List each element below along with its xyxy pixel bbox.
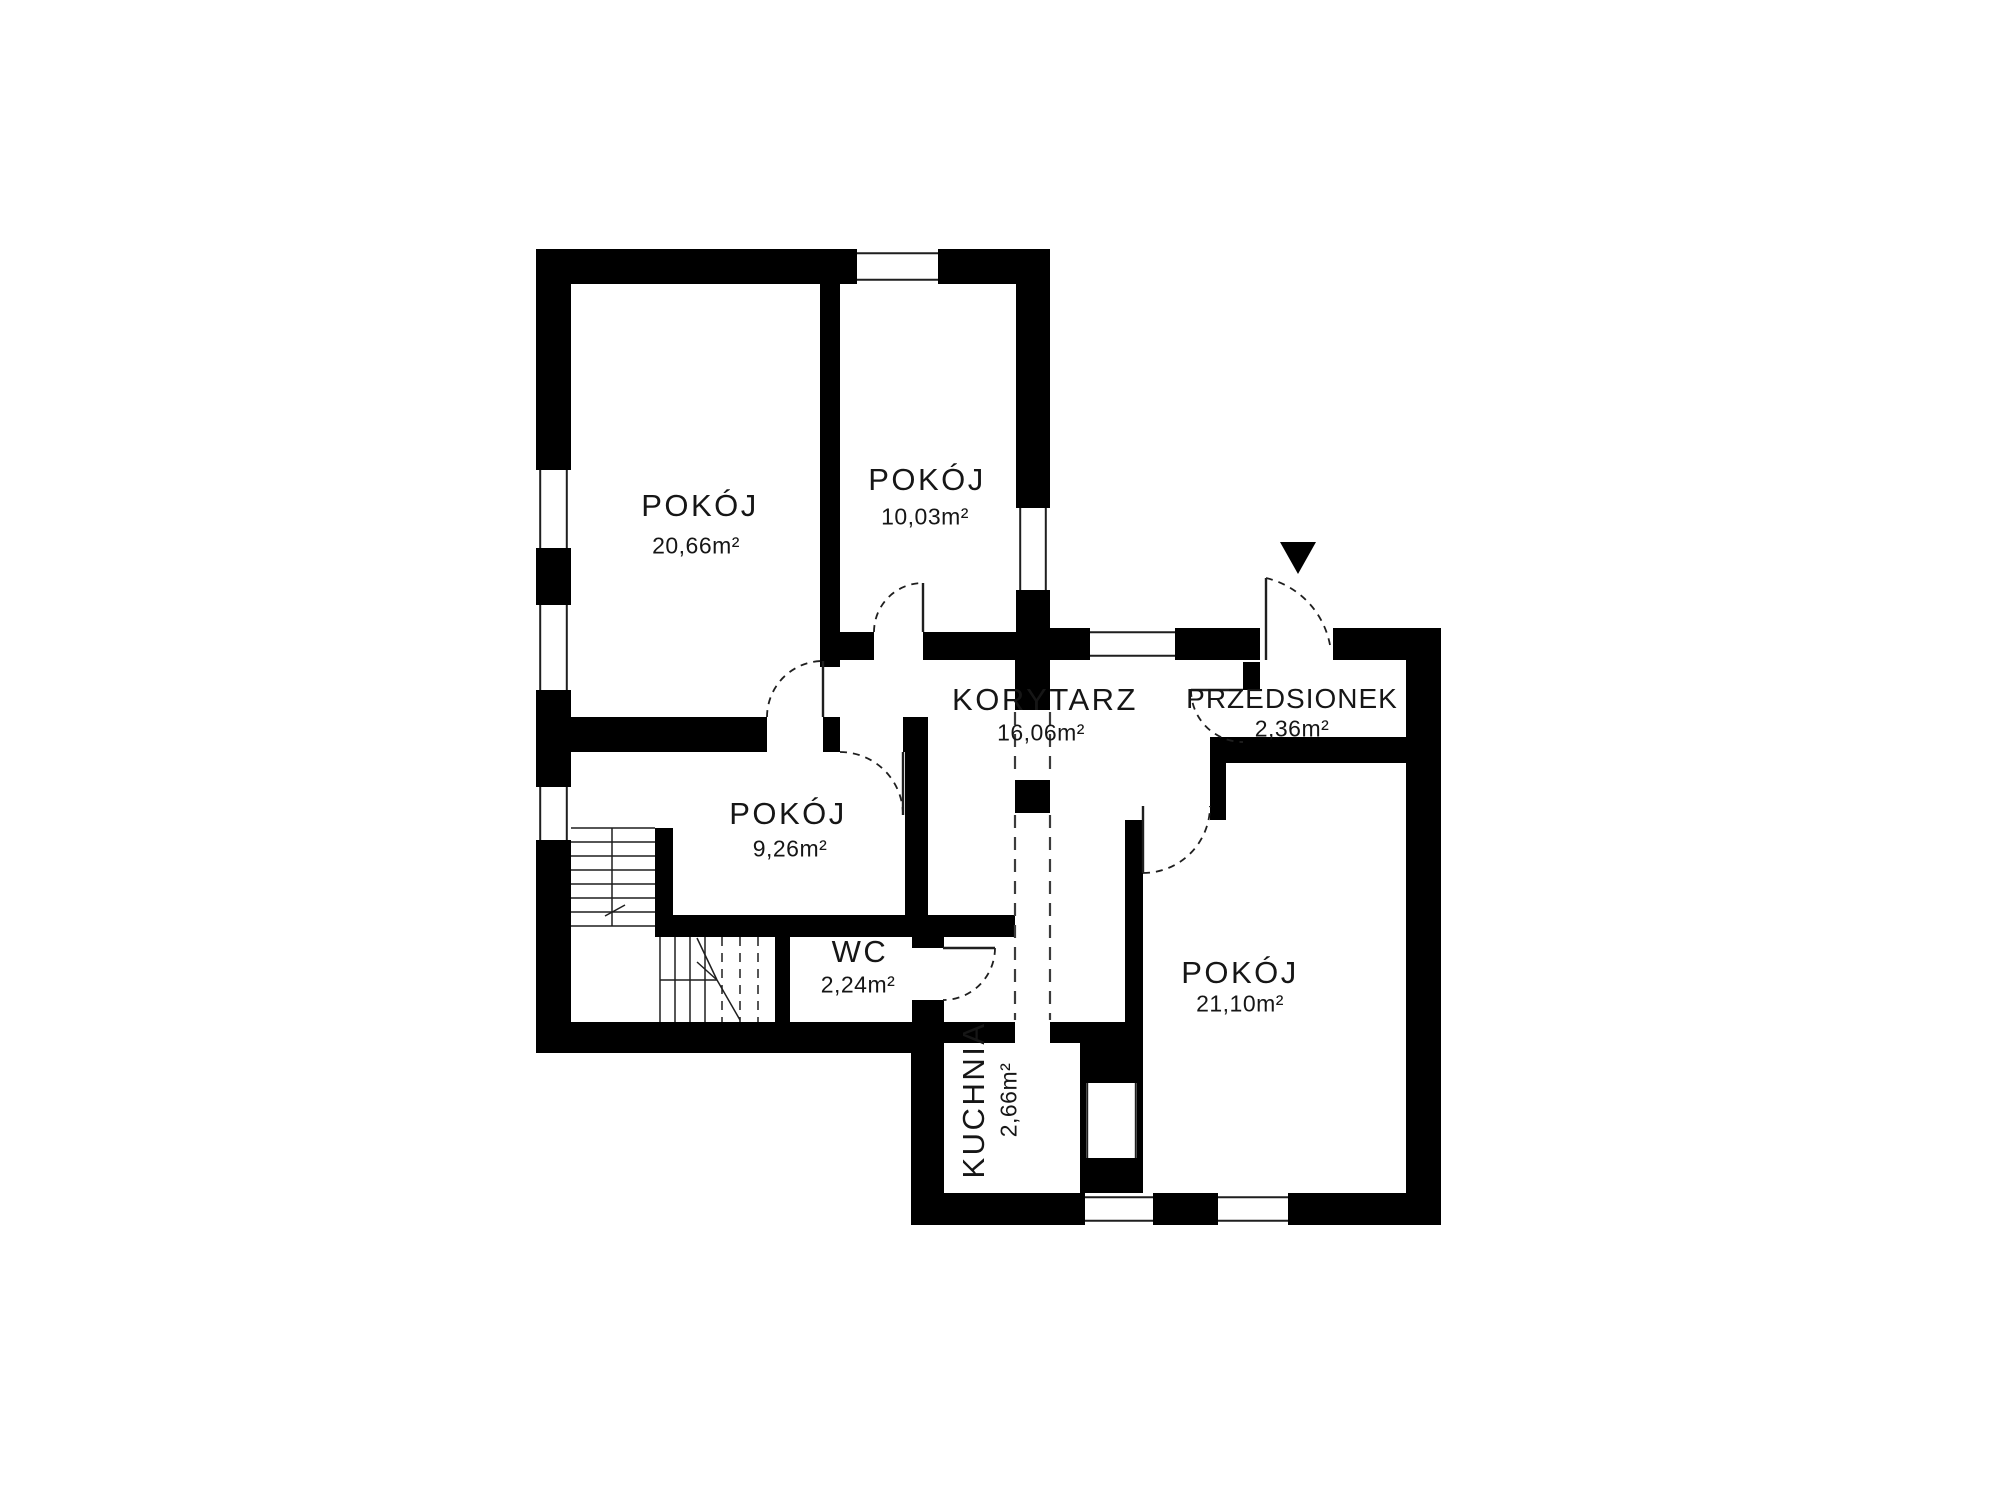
stairs-line [697, 962, 717, 980]
wall-segment [1288, 1193, 1406, 1225]
wall-segment [655, 828, 673, 915]
window [1218, 1196, 1288, 1222]
wall-segment [1015, 780, 1050, 813]
wall-segment [1333, 628, 1406, 660]
room-name-pokoj-1: POKÓJ [641, 488, 759, 524]
wall-segment [912, 937, 944, 948]
stairs-line [697, 938, 717, 980]
wall-segment [536, 249, 857, 284]
window [1019, 508, 1047, 590]
wall-segment [1175, 628, 1260, 660]
wall-segment [1153, 1193, 1218, 1225]
wall-segment [536, 249, 571, 470]
wall-segment [820, 284, 840, 667]
door-swing-arc [840, 752, 903, 815]
wall-segment [923, 632, 1016, 660]
room-area-przedsionek: 2,36m² [1255, 716, 1330, 743]
door-swing-arc [1266, 578, 1330, 645]
wall-segment [903, 717, 928, 752]
window [1090, 631, 1175, 657]
window [539, 605, 568, 690]
room-area-pokoj-3: 9,26m² [753, 836, 828, 863]
stairs-line [605, 905, 625, 916]
wall-segment [1210, 763, 1226, 820]
wall-segment [1050, 628, 1090, 660]
wall-segment [840, 632, 874, 660]
wall-segment [912, 1000, 944, 1022]
room-area-pokoj-1: 20,66m² [652, 533, 740, 560]
window [857, 252, 938, 281]
wall-segment [536, 840, 571, 1053]
door-swing-arc [943, 948, 995, 1000]
door-swing-arc [874, 583, 923, 632]
door-swing-arc [1143, 806, 1210, 873]
entrance-arrow-icon [1280, 542, 1316, 574]
wall-segment [823, 717, 840, 752]
wall-segment [938, 249, 1050, 284]
wall-segment [1050, 1022, 1143, 1043]
room-area-korytarz: 16,06m² [997, 720, 1085, 747]
wall-segment [911, 1053, 944, 1225]
wall-segment [1406, 628, 1441, 1225]
wall-segment [1125, 820, 1143, 1037]
room-name-kuchnia: KUCHNIA [956, 1021, 992, 1178]
window [539, 787, 568, 840]
room-name-pokoj-4: POKÓJ [1181, 955, 1299, 991]
stairs-line [717, 980, 740, 1020]
wall-segment [536, 717, 767, 752]
wall-segment [944, 1193, 1085, 1225]
floor-plan-svg [0, 0, 2000, 1500]
wall-segment [536, 1022, 944, 1053]
wall-segment [905, 752, 928, 915]
wall-segment [775, 937, 790, 1022]
wall-segment [536, 548, 571, 605]
door-swing-arc [767, 661, 823, 717]
wall-segment [1016, 284, 1050, 508]
room-name-pokoj-2: POKÓJ [868, 462, 986, 498]
room-name-pokoj-3: POKÓJ [729, 796, 847, 832]
room-name-korytarz: KORYTARZ [952, 682, 1138, 718]
room-area-kuchnia: 2,66m² [996, 1063, 1023, 1138]
room-area-pokoj-2: 10,03m² [881, 504, 969, 531]
window [1085, 1196, 1153, 1222]
floor-plan: POKÓJ 20,66m² POKÓJ 10,03m² KORYTARZ 16,… [0, 0, 2000, 1500]
wall-segment [1016, 590, 1050, 660]
room-name-przedsionek: PRZEDSIONEK [1186, 683, 1398, 715]
window [1086, 1083, 1137, 1158]
room-area-wc: 2,24m² [821, 972, 896, 999]
window [539, 470, 568, 548]
room-name-wc: WC [832, 934, 889, 970]
room-area-pokoj-4: 21,10m² [1196, 991, 1284, 1018]
